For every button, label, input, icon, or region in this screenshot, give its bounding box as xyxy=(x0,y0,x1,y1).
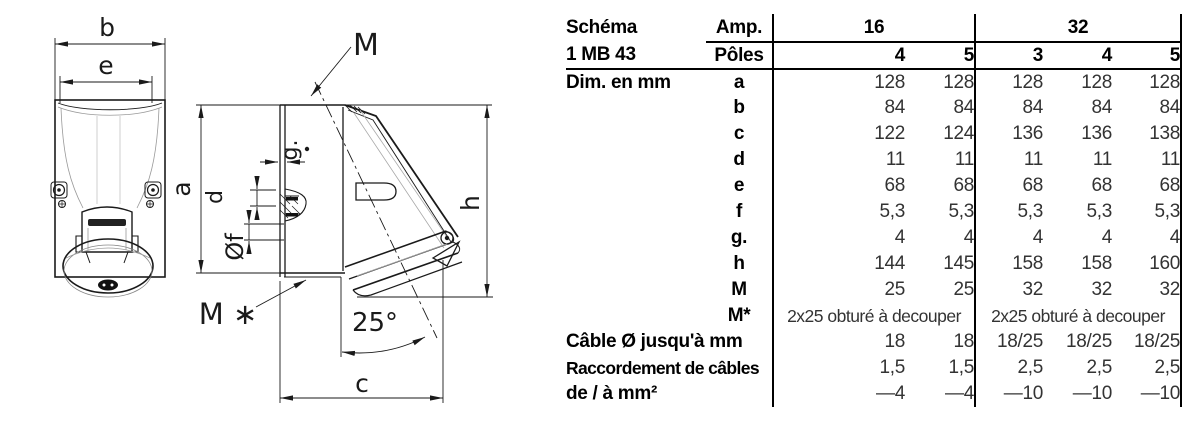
cell: 68 xyxy=(975,173,1043,199)
dim-row-g: g. 4 4 4 4 4 xyxy=(566,225,1181,251)
cell: 32 xyxy=(975,277,1043,303)
cell: 2,5 xyxy=(975,355,1043,381)
dim-row-f: f 5,3 5,3 5,3 5,3 5,3 xyxy=(566,199,1181,225)
cell: 4 xyxy=(1112,225,1181,251)
cell: 4 xyxy=(975,225,1043,251)
cable-diameter-row: Câble Ø jusqu'à mm 18 18 18/25 18/25 18/… xyxy=(566,329,1181,355)
cell: 2x25 obturé à decouper xyxy=(975,303,1181,329)
poles-32-4: 4 xyxy=(1043,42,1112,69)
screw-right-icon xyxy=(145,182,161,208)
dim-key: M xyxy=(706,277,773,303)
cell: 25 xyxy=(905,277,975,303)
wiring-row: Raccordement de câbles 1,5 1,5 2,5 2,5 2… xyxy=(566,355,1181,381)
cell: 68 xyxy=(905,173,975,199)
cell: 4 xyxy=(773,225,905,251)
cell: 32 xyxy=(1112,277,1181,303)
cell: 138 xyxy=(1112,121,1181,147)
poles-16-4: 4 xyxy=(773,42,905,69)
amp-group-16: 16 xyxy=(773,14,975,42)
cell: 122 xyxy=(773,121,905,147)
row-label: Raccordement de câbles xyxy=(566,355,773,381)
dim-row-b: b 84 84 84 84 84 xyxy=(566,95,1181,121)
cell: 68 xyxy=(773,173,905,199)
cell: 18 xyxy=(905,329,975,355)
cell: 68 xyxy=(1112,173,1181,199)
dim-key: c xyxy=(706,121,773,147)
dim-row-h: h 144 145 158 158 160 xyxy=(566,251,1181,277)
dim-label-d: d xyxy=(203,190,228,204)
cell: 128 xyxy=(1043,69,1112,95)
cell: 84 xyxy=(1112,95,1181,121)
row-label: de / à mm² xyxy=(566,381,773,407)
cell: 136 xyxy=(975,121,1043,147)
dim-key: e xyxy=(706,173,773,199)
technical-drawing: b e xyxy=(0,0,560,427)
cell: 4 xyxy=(1043,225,1112,251)
schema-label: Schéma xyxy=(566,14,706,42)
cell: 128 xyxy=(1112,69,1181,95)
cable-entry-nib xyxy=(280,189,306,221)
amp-label: Amp. xyxy=(706,14,773,42)
cell: —10 xyxy=(1112,381,1181,407)
cell: 1,5 xyxy=(773,355,905,381)
dim-label-g: g. xyxy=(278,140,303,161)
cell: —4 xyxy=(905,381,975,407)
cell: 11 xyxy=(975,147,1043,173)
dim-d xyxy=(250,177,276,219)
cell: 5,3 xyxy=(1043,199,1112,225)
dim-row-d: d 11 11 11 11 11 xyxy=(566,147,1181,173)
m-leader xyxy=(311,47,351,96)
cell: 2,5 xyxy=(1043,355,1112,381)
m-star-leader xyxy=(256,280,306,307)
datasheet-page: b e xyxy=(0,0,1200,427)
cell: 11 xyxy=(1043,147,1112,173)
cell: 2,5 xyxy=(1112,355,1181,381)
dim-label-m-star: M ∗ xyxy=(199,297,258,331)
amp-header-row: Schéma Amp. 16 32 xyxy=(566,14,1181,42)
cell: 1,5 xyxy=(905,355,975,381)
cell: 5,3 xyxy=(975,199,1043,225)
dim-label-h: h xyxy=(456,195,485,211)
cell: 124 xyxy=(905,121,975,147)
dim-row-M: M 25 25 32 32 32 xyxy=(566,277,1181,303)
dim-label-a: a xyxy=(167,181,196,196)
poles-header-row: 1 MB 43 Pôles 4 5 3 4 5 xyxy=(566,42,1181,69)
row-label: Câble Ø jusqu'à mm xyxy=(566,329,773,355)
dim-key: b xyxy=(706,95,773,121)
slot-icon xyxy=(356,183,396,200)
dim-label-angle: 25° xyxy=(352,308,398,338)
cell: 128 xyxy=(905,69,975,95)
cell: 136 xyxy=(1043,121,1112,147)
cell: 2x25 obturé à decouper xyxy=(773,303,975,329)
dim-row-M-star: M* 2x25 obturé à decouper 2x25 obturé à … xyxy=(566,303,1181,329)
cell: 11 xyxy=(905,147,975,173)
dim-label-e: e xyxy=(98,51,113,80)
dim-a xyxy=(196,105,340,273)
dim-label-f: Øf xyxy=(221,233,249,261)
cell: 18/25 xyxy=(1043,329,1112,355)
cell: 84 xyxy=(773,95,905,121)
cell: 84 xyxy=(1043,95,1112,121)
dim-key: a xyxy=(706,69,773,95)
cell: —4 xyxy=(773,381,905,407)
cell: —10 xyxy=(1043,381,1112,407)
dim-key: g. xyxy=(706,225,773,251)
wiring-range-row: de / à mm² —4 —4 —10 —10 —10 xyxy=(566,381,1181,407)
amp-group-32: 32 xyxy=(975,14,1181,42)
cell: 5,3 xyxy=(905,199,975,225)
dim-row-a: Dim. en mm a 128 128 128 128 128 xyxy=(566,69,1181,95)
keyhole-icon xyxy=(98,280,118,291)
dim-label-M: M xyxy=(353,28,379,63)
cell: 5,3 xyxy=(1112,199,1181,225)
g-dot-icon xyxy=(305,147,309,151)
dim-f xyxy=(244,211,284,253)
cell: 84 xyxy=(905,95,975,121)
cell: 128 xyxy=(975,69,1043,95)
dim-row-e: e 68 68 68 68 68 xyxy=(566,173,1181,199)
dim-key: M* xyxy=(706,303,773,329)
side-view xyxy=(196,47,493,403)
dim-section-label: Dim. en mm xyxy=(566,69,706,95)
cell: 25 xyxy=(773,277,905,303)
poles-label: Pôles xyxy=(706,42,773,69)
poles-16-5: 5 xyxy=(905,42,975,69)
spec-table: Schéma Amp. 16 32 1 MB 43 Pôles 4 5 3 4 … xyxy=(566,14,1182,407)
dim-label-c: c xyxy=(355,369,369,398)
cell: 32 xyxy=(1043,277,1112,303)
cell: 18 xyxy=(773,329,905,355)
cell: 18/25 xyxy=(1112,329,1181,355)
dim-key: f xyxy=(706,199,773,225)
cell: 11 xyxy=(1112,147,1181,173)
cell: —10 xyxy=(975,381,1043,407)
cell: 158 xyxy=(1043,251,1112,277)
cell: 128 xyxy=(773,69,905,95)
cell: 4 xyxy=(905,225,975,251)
cell: 84 xyxy=(975,95,1043,121)
cell: 18/25 xyxy=(975,329,1043,355)
dim-e xyxy=(60,76,152,103)
cell: 144 xyxy=(773,251,905,277)
schema-value: 1 MB 43 xyxy=(566,42,706,69)
cell: 145 xyxy=(905,251,975,277)
cell: 5,3 xyxy=(773,199,905,225)
cell: 158 xyxy=(975,251,1043,277)
dim-key: h xyxy=(706,251,773,277)
cell: 11 xyxy=(773,147,905,173)
cell: 160 xyxy=(1112,251,1181,277)
dim-row-c: c 122 124 136 136 138 xyxy=(566,121,1181,147)
dim-key: d xyxy=(706,147,773,173)
cell: 68 xyxy=(1043,173,1112,199)
screw-left-icon xyxy=(51,182,67,208)
poles-32-5: 5 xyxy=(1112,42,1181,69)
poles-32-3: 3 xyxy=(975,42,1043,69)
dim-label-b: b xyxy=(99,13,115,42)
